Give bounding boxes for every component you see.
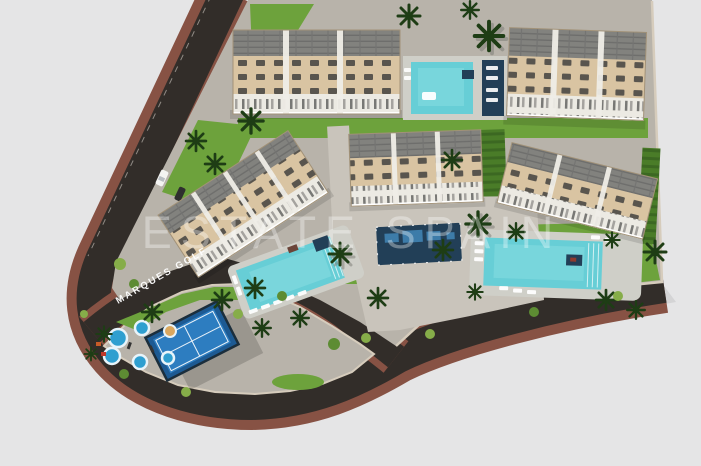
palm-tree bbox=[461, 1, 479, 19]
building-block-top-left bbox=[230, 30, 402, 119]
palm-tree bbox=[96, 326, 111, 341]
palm-tree bbox=[368, 288, 388, 308]
palm-tree bbox=[596, 290, 616, 310]
palm-tree bbox=[212, 290, 232, 310]
palm-tree bbox=[644, 241, 666, 263]
pool-top bbox=[403, 56, 507, 120]
palm-tree bbox=[186, 131, 206, 151]
palm-tree bbox=[442, 150, 462, 170]
palm-tree bbox=[627, 301, 645, 319]
palm-tree bbox=[291, 309, 309, 327]
palm-tree bbox=[253, 319, 271, 337]
palm-tree bbox=[604, 232, 619, 247]
palm-tree bbox=[142, 302, 162, 322]
palm-tree bbox=[245, 278, 265, 298]
site-plan-render: MARQUES GOLF ESTATE SPAIN bbox=[0, 0, 701, 466]
palm-tree bbox=[205, 154, 225, 174]
palm-tree bbox=[239, 109, 263, 133]
palm-tree bbox=[467, 284, 482, 299]
building-block-mid-center bbox=[347, 130, 486, 212]
palm-tree bbox=[475, 22, 504, 51]
building-block-top-right bbox=[503, 28, 648, 130]
palm-tree bbox=[84, 347, 97, 360]
palm-tree bbox=[398, 5, 420, 27]
watermark: ESTATE SPAIN bbox=[142, 207, 563, 258]
